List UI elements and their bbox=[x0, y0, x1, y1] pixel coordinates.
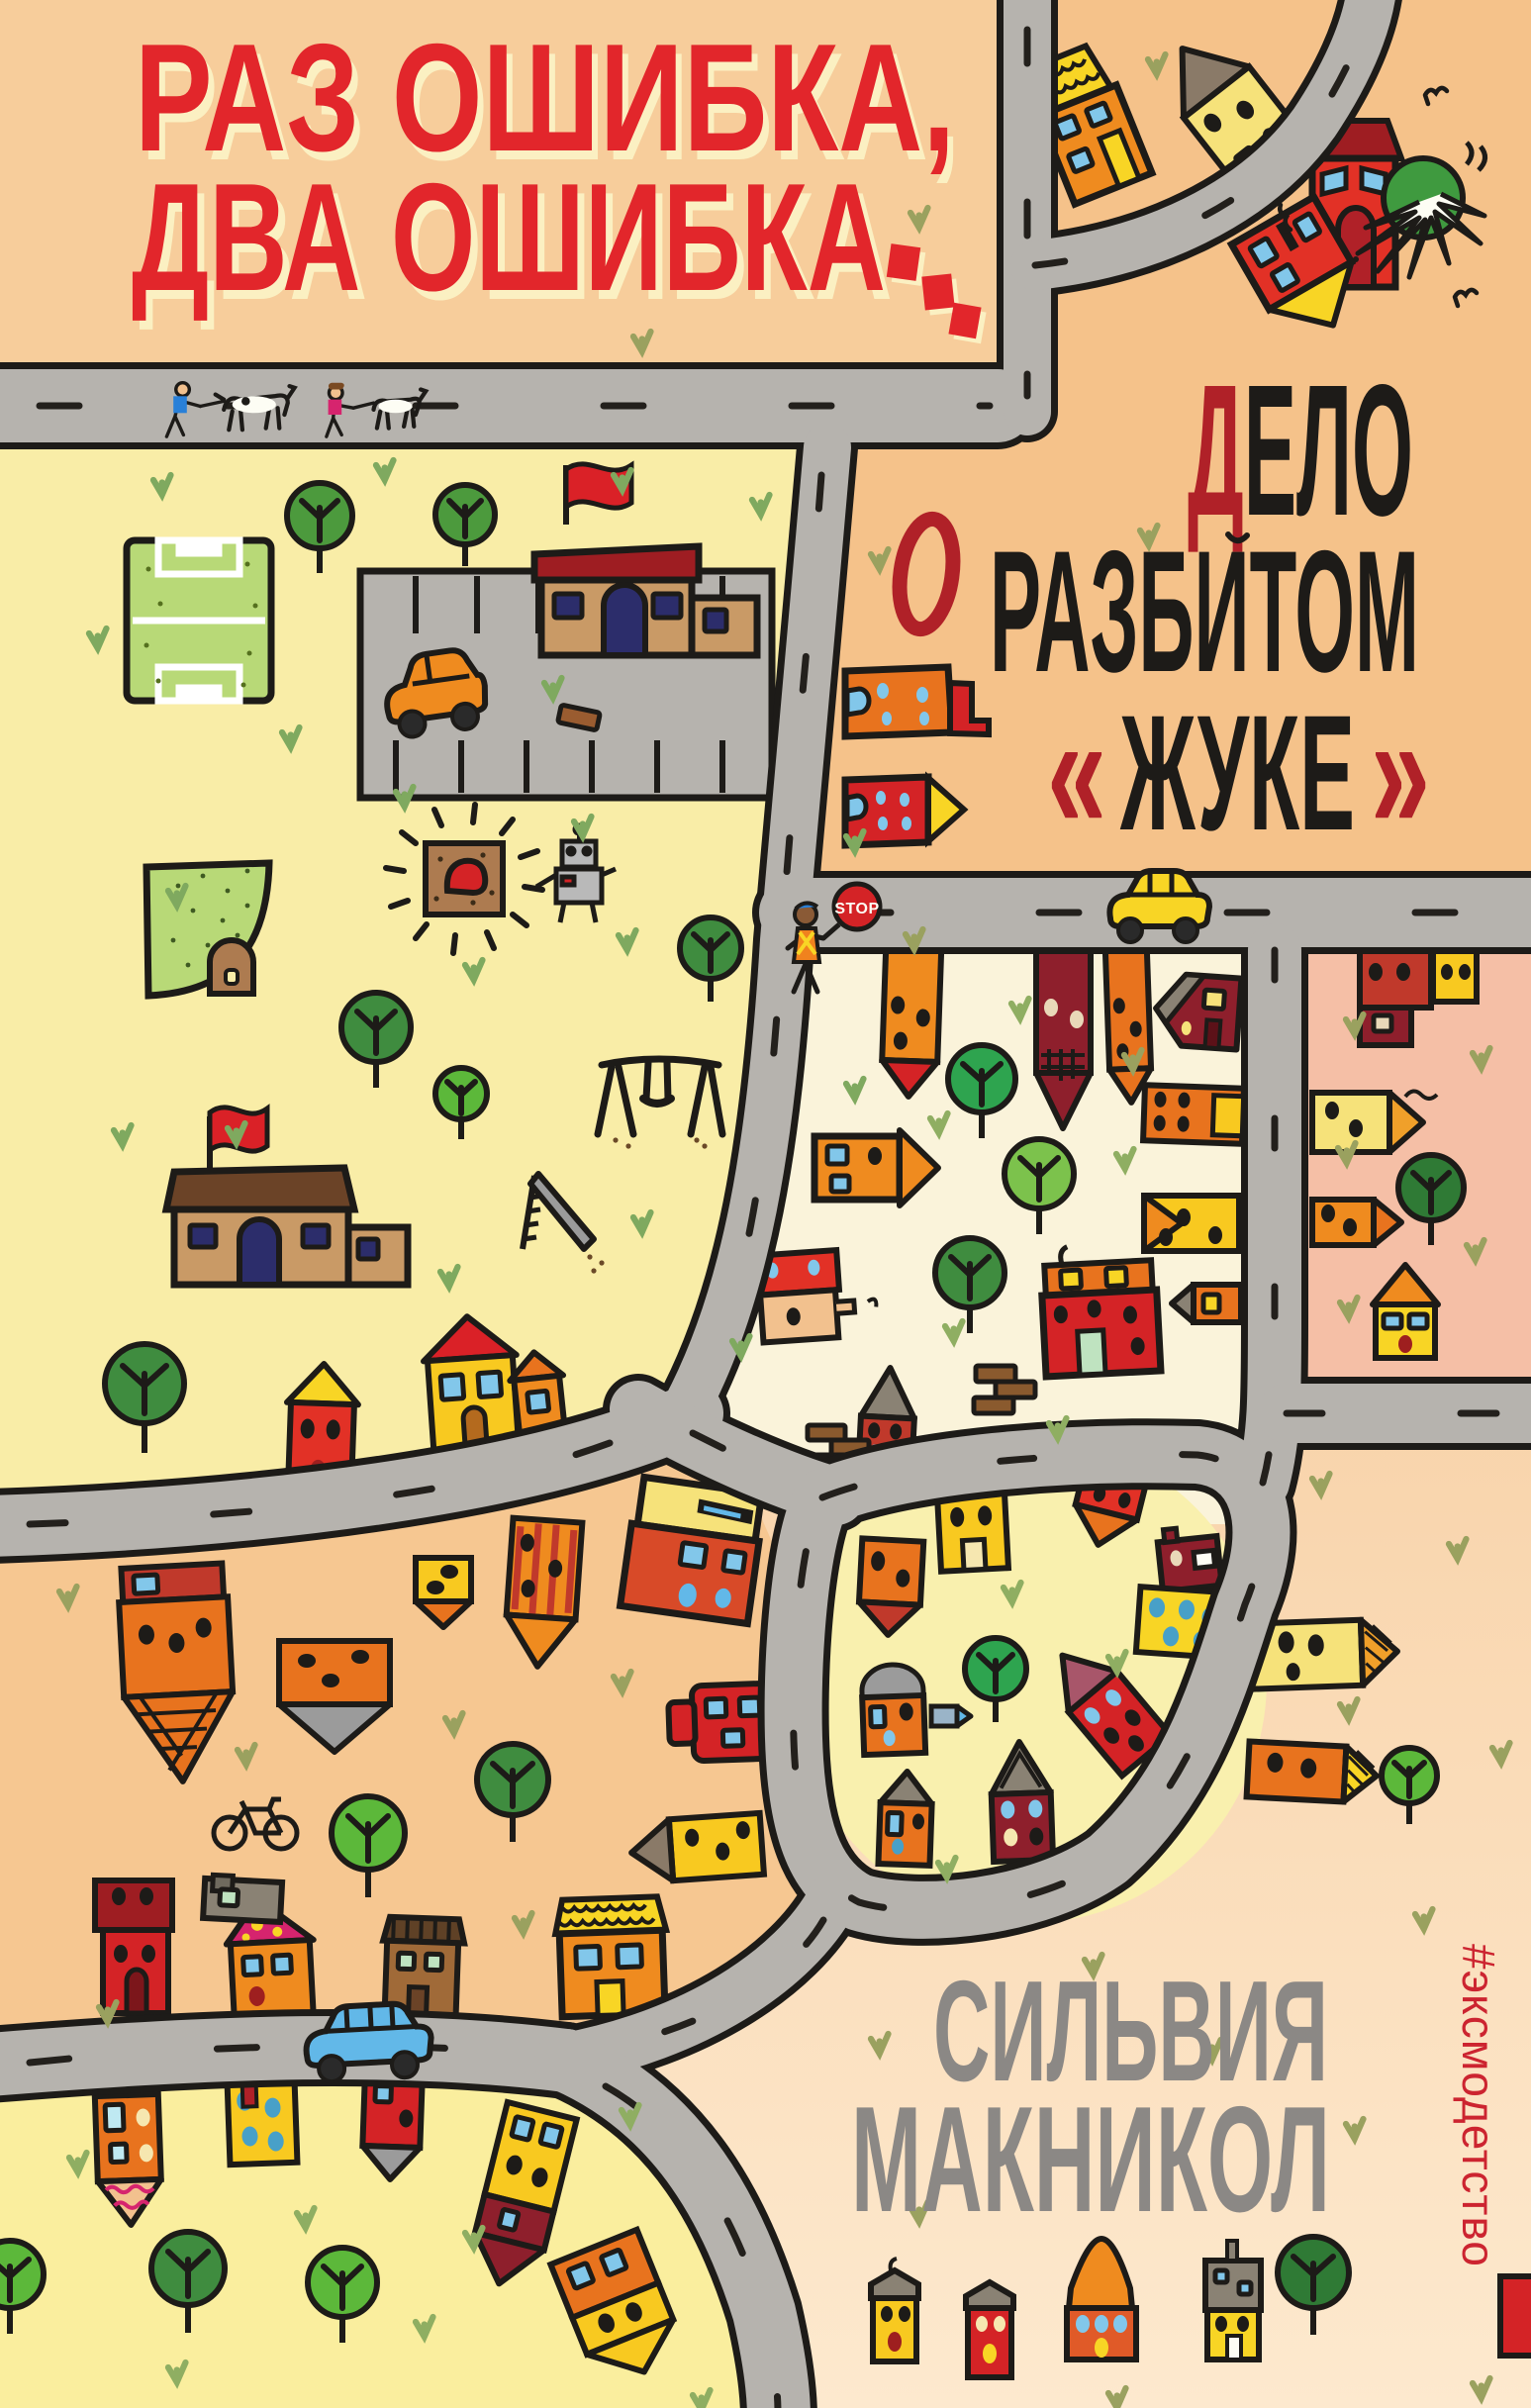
svg-text:STOP: STOP bbox=[834, 901, 879, 917]
svg-text:ДВА ОШИБКА: ДВА ОШИБКА bbox=[132, 151, 886, 323]
svg-text:МАКНИКОЛ: МАКНИКОЛ bbox=[851, 2075, 1330, 2244]
svg-text:ЖУКЕ: ЖУКЕ bbox=[1119, 682, 1355, 865]
svg-text:#эксмодетство: #эксмодетство bbox=[1453, 1944, 1504, 2267]
svg-text:«: « bbox=[1047, 678, 1106, 866]
svg-text:»: » bbox=[1371, 678, 1430, 866]
